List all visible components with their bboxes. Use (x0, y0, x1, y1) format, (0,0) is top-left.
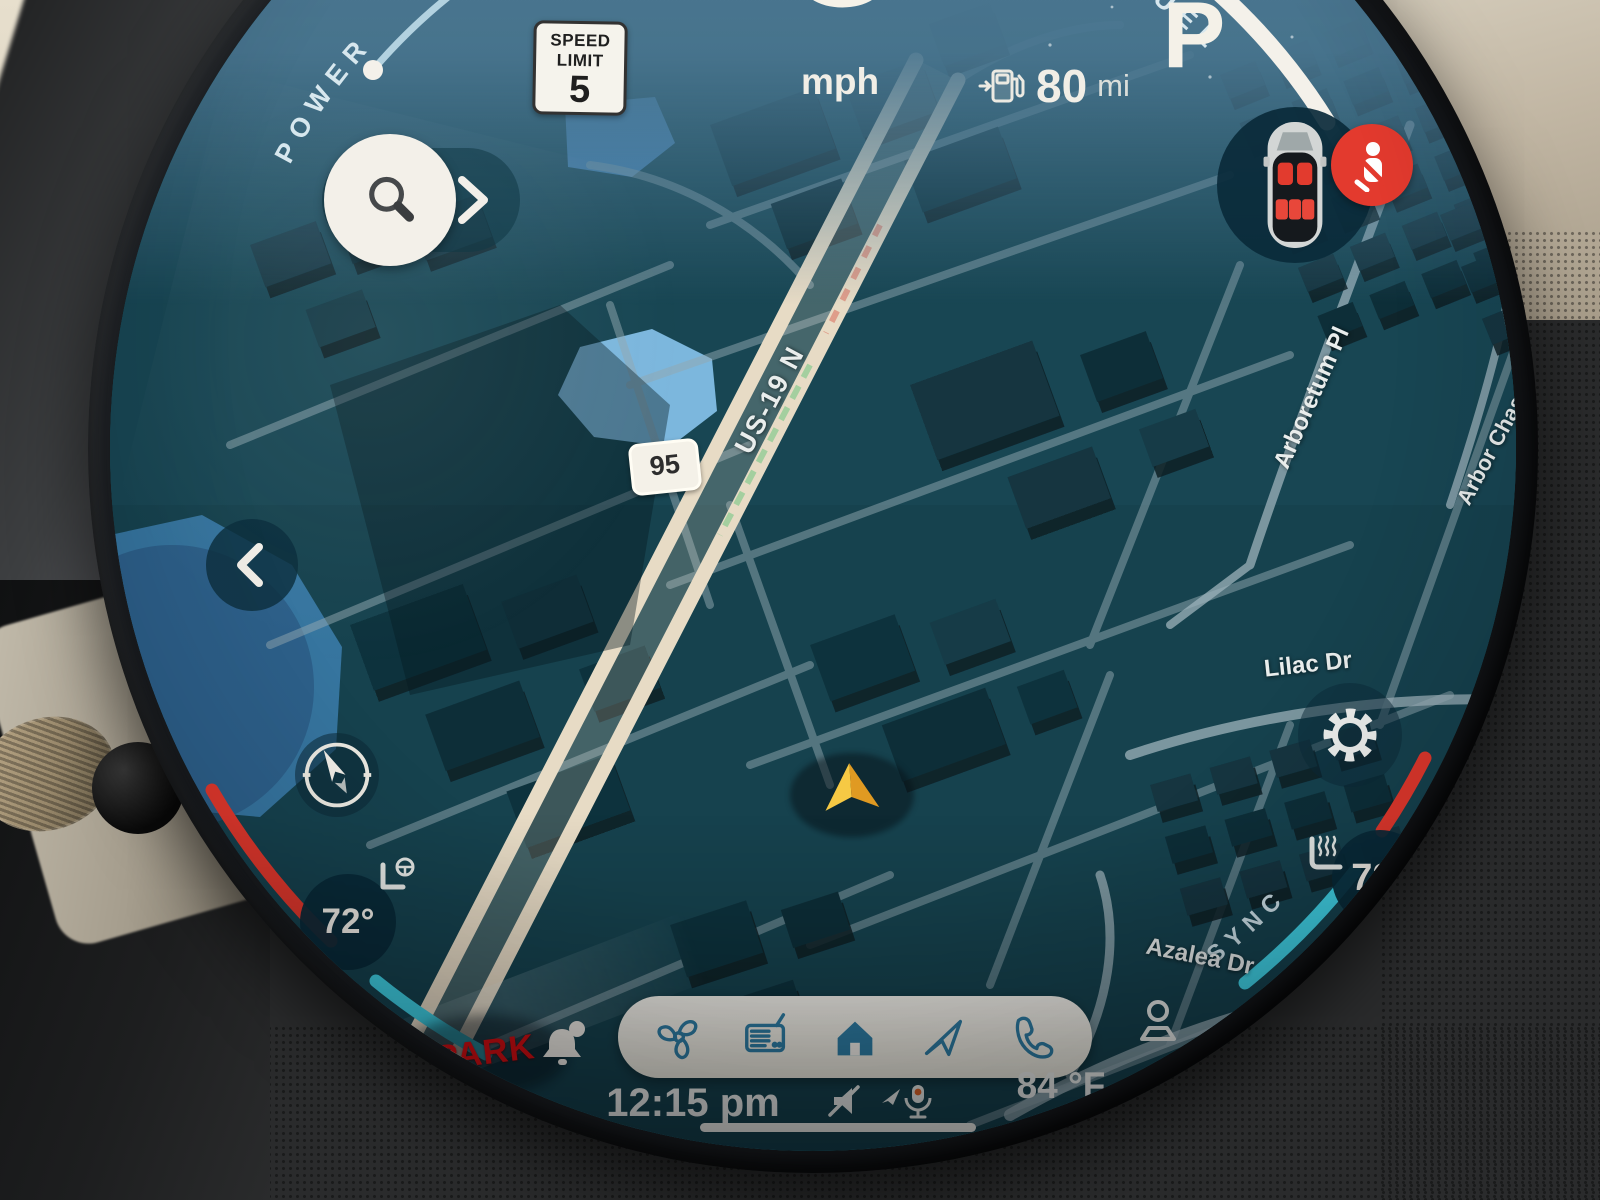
search-icon (358, 168, 422, 232)
car-seats-icon (1258, 118, 1332, 252)
phone-icon[interactable] (1004, 1010, 1058, 1064)
speed-limit-sign: SPEED LIMIT 5 (532, 20, 628, 116)
power-needle-dot (363, 60, 383, 80)
seatbelt-icon (1347, 138, 1397, 192)
muted-speaker-icon (830, 1087, 858, 1115)
display-bezel: POWER FUEL SYNC 0 mph (88, 0, 1538, 1173)
speed-limit-value: 5 (535, 70, 624, 111)
status-icons (820, 1081, 980, 1125)
compass-button[interactable] (295, 733, 379, 817)
outside-temperature: 84 °F (966, 1065, 1156, 1107)
range-unit: mi (1097, 68, 1130, 104)
climate-fan-icon[interactable] (652, 1010, 706, 1064)
navigation-icon[interactable] (916, 1010, 970, 1064)
fuel-pump-icon (978, 65, 1026, 107)
gear-icon (1312, 697, 1388, 773)
compass-icon (299, 737, 375, 813)
seatbelt-warning-button[interactable] (1331, 124, 1413, 206)
driver-profile-icon[interactable] (1130, 993, 1186, 1049)
gear-indicator: P (1144, 0, 1244, 89)
voice-location-icon (882, 1089, 900, 1105)
dashboard-photo: POWER FUEL SYNC 0 mph (0, 0, 1600, 1200)
speed-limit-line1: SPEED (536, 30, 624, 52)
vehicle-position-marker (814, 757, 888, 822)
speed-value: 0 (710, 0, 970, 45)
range-value: 80 (1036, 59, 1087, 113)
microphone-icon (906, 1085, 930, 1117)
circular-display[interactable]: POWER FUEL SYNC 0 mph (110, 0, 1516, 1151)
fuel-range: 80 mi (978, 59, 1130, 113)
right-temp-button[interactable]: 72° (1332, 830, 1428, 926)
route-shield: 95 (627, 437, 702, 496)
home-icon[interactable] (828, 1010, 882, 1064)
seat-heat-icon (1304, 833, 1346, 873)
settings-button[interactable] (1298, 683, 1402, 787)
steering-heat-icon (377, 857, 417, 893)
speed-unit: mph (750, 61, 930, 103)
media-radio-icon[interactable] (740, 1010, 794, 1064)
home-indicator[interactable] (700, 1123, 976, 1132)
chevron-left-icon (228, 538, 276, 592)
chevron-right-icon[interactable] (446, 172, 498, 228)
back-button[interactable] (206, 519, 298, 611)
notification-bell-icon[interactable] (535, 1019, 591, 1075)
search-button[interactable] (324, 134, 456, 266)
clock: 12:15 pm (578, 1081, 808, 1126)
